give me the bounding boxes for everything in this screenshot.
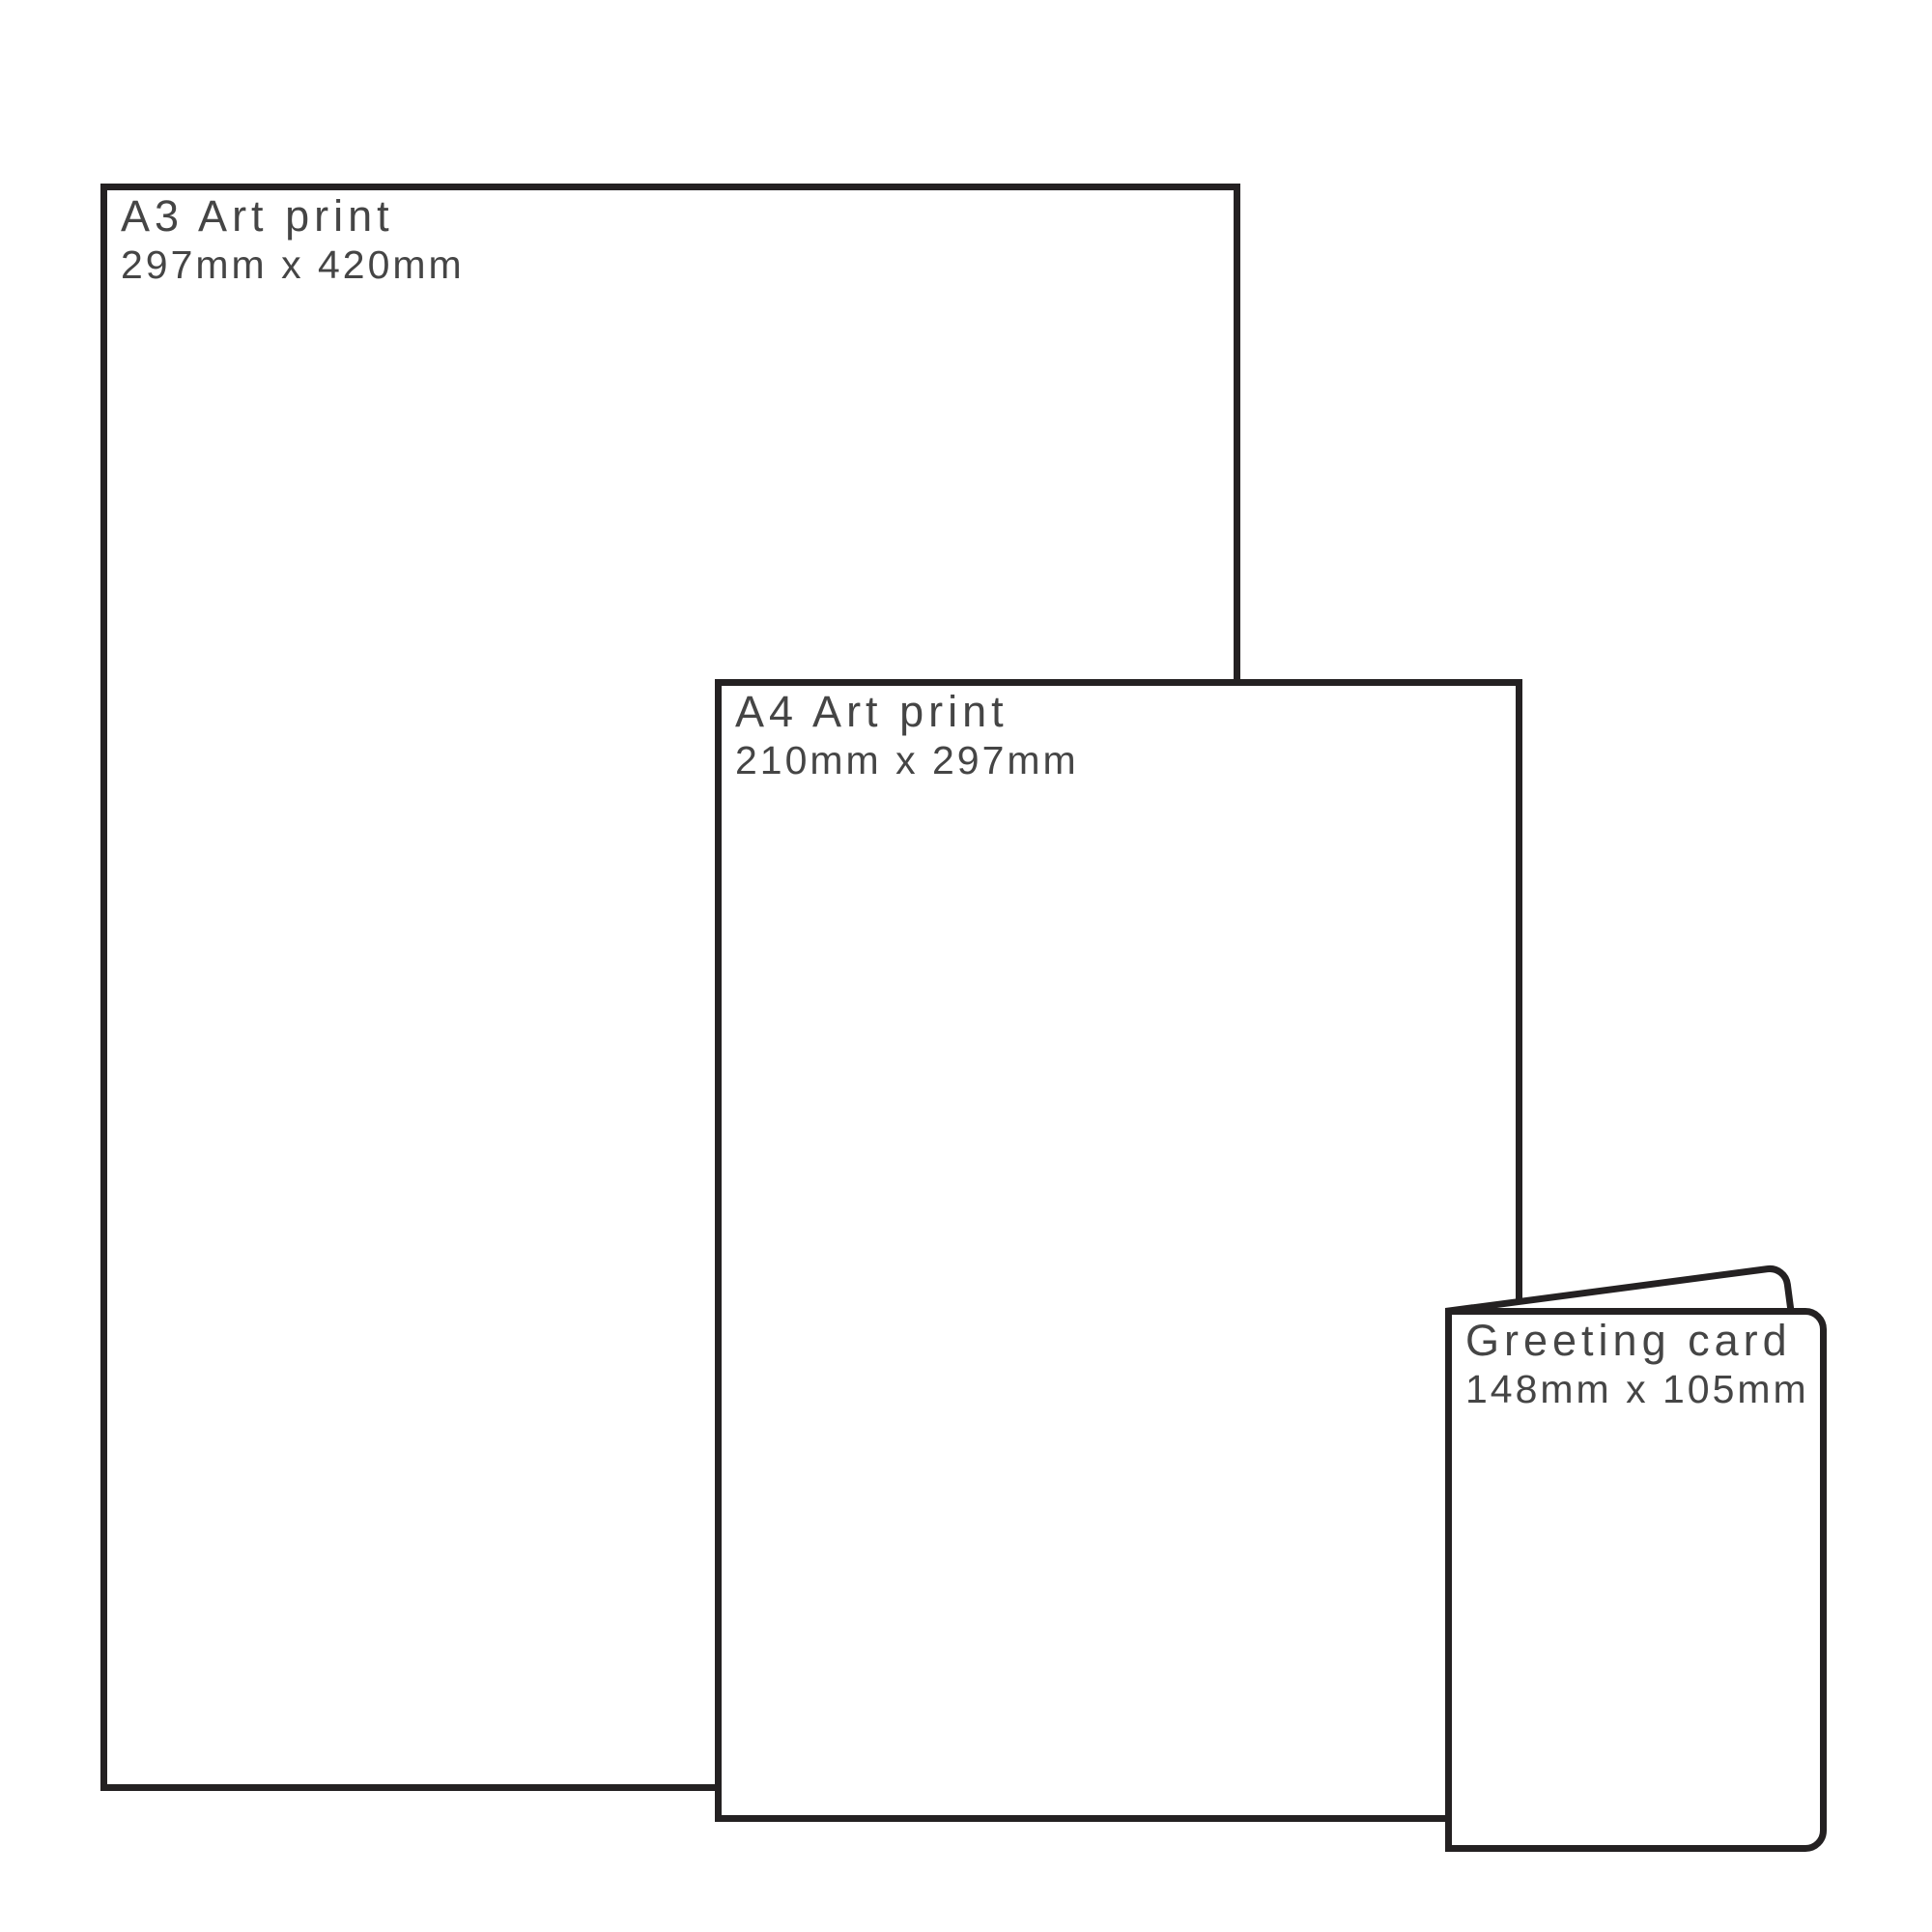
size-comparison-diagram: A3 Art print 297mm x 420mm A4 Art print … [0,0,1932,1932]
a3-print-label: A3 Art print 297mm x 420mm [107,190,1234,288]
a3-print-dimensions: 297mm x 420mm [121,242,1234,288]
a4-print-rectangle: A4 Art print 210mm x 297mm [715,679,1522,1822]
greeting-card-dimensions: 148mm x 105mm [1465,1367,1820,1412]
a4-print-dimensions: 210mm x 297mm [735,738,1516,783]
greeting-card-label: Greeting card 148mm x 105mm [1452,1315,1820,1412]
a3-print-title: A3 Art print [121,190,1234,242]
a4-print-label: A4 Art print 210mm x 297mm [722,686,1516,783]
greeting-card-title: Greeting card [1465,1315,1820,1367]
a4-print-title: A4 Art print [735,686,1516,738]
greeting-card-front-panel: Greeting card 148mm x 105mm [1445,1308,1827,1852]
